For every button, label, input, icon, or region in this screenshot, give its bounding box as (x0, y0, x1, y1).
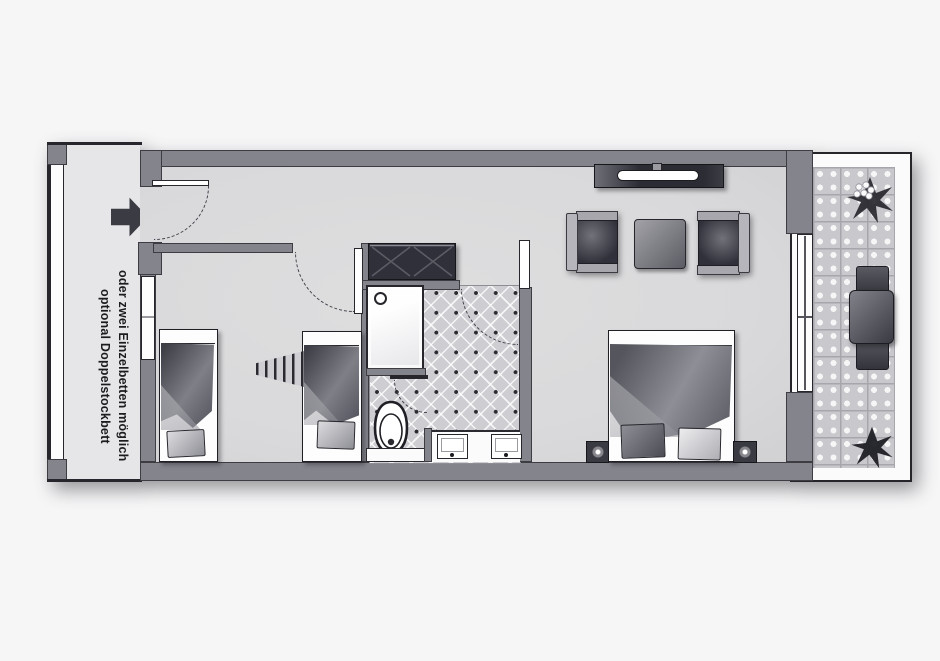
corridor-wall-cap-top (47, 143, 67, 165)
bathroom-door-leaf (519, 240, 530, 289)
nightstand-right-lamp-icon (739, 446, 751, 458)
nightstand-right (733, 441, 757, 463)
nightstand-left-lamp-icon (592, 446, 604, 458)
armchair-left-arm-bottom (576, 263, 618, 273)
annotation-line-2: oder zwei Einzelbetten möglich (114, 256, 132, 476)
kids-room-window (141, 276, 155, 360)
nightstand-left (586, 441, 609, 463)
wardrobe (368, 243, 456, 280)
armchair-right-back (738, 213, 750, 273)
corridor-window (50, 164, 64, 461)
wc-shelf (366, 448, 426, 462)
sink-2-basin (495, 438, 518, 452)
shower-drain-icon (374, 292, 387, 305)
wall-right-upper (786, 150, 813, 234)
floor-plan: optional Doppelstockbett oder zwei Einze… (0, 0, 940, 661)
corridor-bottom-edge (47, 479, 142, 482)
balcony-plant-bottom-icon (848, 425, 896, 470)
double-bed-headboard (611, 333, 732, 346)
sink-divider-wall (424, 428, 432, 462)
armchair-left (566, 211, 618, 273)
sink-1 (437, 434, 468, 459)
corridor-top-edge (47, 142, 142, 145)
armchair-right-arm-bottom (697, 265, 740, 275)
armchair-right (697, 211, 750, 275)
annotation-label: optional Doppelstockbett oder zwei Einze… (96, 256, 136, 476)
balcony-table (849, 290, 894, 344)
tv (617, 170, 699, 181)
single-bed-1-headboard (162, 332, 215, 344)
balcony-plant-top-icon (845, 175, 895, 225)
double-bed-pillow-right (678, 427, 722, 460)
sink-2 (491, 434, 522, 459)
corridor-wall-cap-bottom (47, 459, 67, 481)
kids-room-top-wall (153, 243, 293, 253)
wc-partition-line (390, 375, 428, 379)
sink-1-basin (441, 438, 464, 452)
wall-bottom (140, 462, 813, 481)
sink-2-faucet-icon (504, 453, 508, 457)
armchair-right-seat (698, 220, 739, 266)
single-bed-2-headboard (305, 334, 359, 346)
single-bed-2-pillow (317, 420, 356, 449)
wardrobe-x-pattern (369, 244, 455, 279)
balcony-window-pane-line (804, 236, 806, 390)
annotation-line-1: optional Doppelstockbett (96, 256, 114, 476)
sink-1-faucet-icon (450, 453, 454, 457)
double-bed-pillow-left (620, 423, 665, 459)
armchair-left-back (566, 213, 578, 271)
side-table (634, 219, 686, 269)
armchair-left-seat (577, 220, 618, 264)
kids-room-window-divider (142, 316, 154, 318)
balcony-window-divider (798, 316, 812, 318)
single-bed-1-pillow (166, 429, 205, 458)
wall-right-lower (786, 392, 813, 462)
